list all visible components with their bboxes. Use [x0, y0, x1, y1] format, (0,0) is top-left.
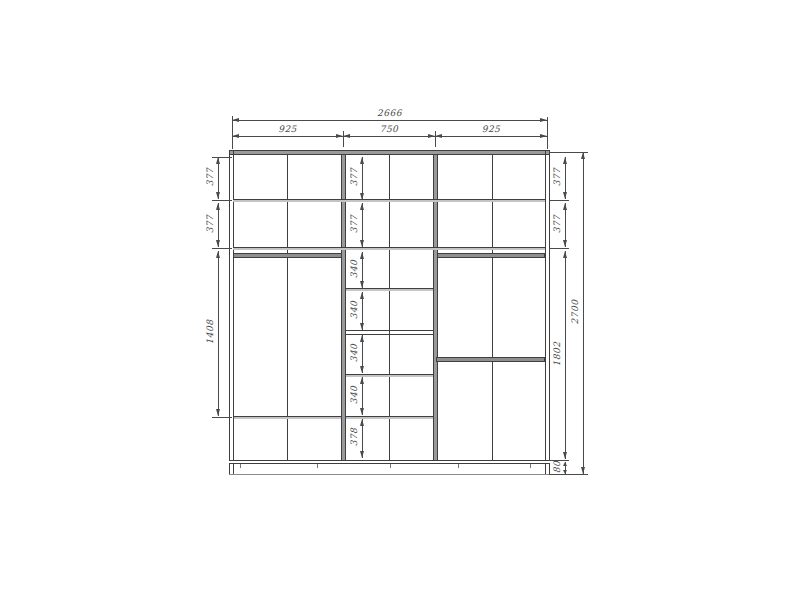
plinth-bottom-edge [229, 474, 550, 475]
dim-width-middle-section: 750 [343, 136, 435, 137]
foot-tick [317, 464, 318, 468]
extension-line [212, 248, 232, 249]
dim-width-left-section: 925 [232, 136, 343, 137]
dim-total-height: 2700 [583, 152, 584, 474]
dim-left-377-top: 377 [218, 157, 219, 199]
dim-label: 2700 [570, 295, 580, 329]
dim-mid-378: 378 [362, 419, 363, 458]
side-panel-right-outer-line [549, 150, 550, 474]
dim-label: 377 [205, 207, 215, 241]
dim-mid-340-2: 340 [362, 292, 363, 330]
foot-tick [530, 464, 531, 468]
shelf-row2-full-width [233, 247, 545, 250]
shelf-left-bottom [234, 416, 341, 419]
dim-right-377-top: 377 [565, 157, 566, 199]
dim-label: 377 [552, 160, 562, 194]
foot-tick [240, 464, 241, 468]
dim-width-left-label: 925 [232, 124, 343, 134]
extension-line [549, 248, 569, 249]
dim-label: 377 [552, 207, 562, 241]
dim-label: 1802 [552, 337, 562, 371]
dim-right-1802: 1802 [565, 251, 566, 459]
dim-left-1408: 1408 [218, 251, 219, 416]
extension-line [547, 117, 548, 149]
dim-label: 377 [349, 207, 359, 241]
foot-tick [390, 464, 391, 468]
dim-total-width: 2666 [232, 120, 547, 121]
dim-label: 340 [349, 293, 359, 327]
side-panel-right-inner-line [545, 150, 546, 474]
foot-tick [458, 464, 459, 468]
dim-label: 1408 [205, 315, 215, 349]
dim-total-width-label: 2666 [232, 108, 547, 118]
dim-left-377-second: 377 [218, 203, 219, 247]
dim-mid-340-4: 340 [362, 377, 363, 415]
shelf-middle-double-line-top [346, 330, 433, 331]
dim-label: 378 [349, 420, 359, 454]
dim-label: 340 [349, 252, 359, 286]
shelf-right-section [436, 357, 545, 362]
side-panel-left-outer-line [229, 150, 230, 474]
dim-width-right-label: 925 [435, 124, 547, 134]
extension-line [549, 200, 569, 201]
dim-label: 340 [349, 336, 359, 370]
dim-label: 80 [552, 450, 562, 484]
dim-label: 377 [205, 160, 215, 194]
extension-line [212, 157, 232, 158]
hanging-rod-right [437, 253, 545, 258]
dim-mid-340-3: 340 [362, 335, 363, 373]
dim-label: 340 [349, 378, 359, 412]
dim-label: 377 [349, 160, 359, 194]
extension-line [212, 417, 232, 418]
extension-line [212, 200, 232, 201]
dim-width-right-section: 925 [435, 136, 547, 137]
dim-right-377-second: 377 [565, 203, 566, 247]
dim-mid-377-second: 377 [362, 203, 363, 247]
dim-width-middle-label: 750 [343, 124, 435, 134]
dim-mid-377-top: 377 [362, 157, 363, 200]
wardrobe-dimension-drawing: 2666 925 750 925 377 377 1408 377 377 34… [0, 0, 800, 600]
shelf-row1-full-width [233, 199, 545, 202]
dim-mid-340-1: 340 [362, 252, 363, 288]
shelf-middle-1 [346, 288, 433, 291]
dim-plinth-80: 80 [565, 462, 566, 474]
hanging-rod-left [233, 253, 342, 258]
